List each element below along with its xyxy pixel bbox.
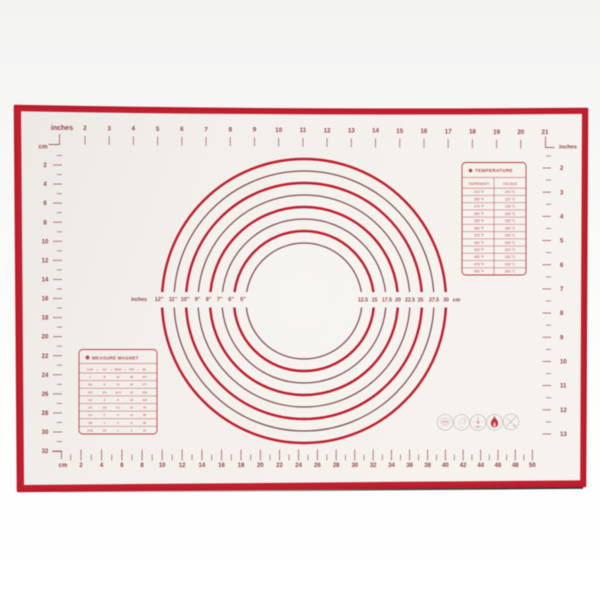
svg-text:cm: cm: [453, 298, 461, 304]
svg-text:2/3: 2/3: [88, 390, 93, 394]
svg-text:CELSIUS: CELSIUS: [503, 182, 518, 186]
svg-text:400 °F: 400 °F: [474, 241, 484, 245]
svg-text:8″: 8″: [206, 297, 212, 303]
svg-text:inches: inches: [559, 145, 577, 151]
svg-text:10: 10: [275, 127, 282, 134]
svg-text:6″: 6″: [228, 297, 234, 303]
svg-text:+: +: [111, 367, 113, 371]
svg-text:177: 177: [142, 383, 147, 387]
svg-text:14: 14: [42, 278, 49, 284]
svg-text:34: 34: [388, 463, 395, 469]
svg-text:5: 5: [156, 126, 160, 133]
svg-text:26: 26: [314, 463, 321, 469]
svg-text:17.5: 17.5: [382, 298, 392, 304]
svg-text:20: 20: [517, 129, 524, 136]
svg-text:10″: 10″: [181, 297, 190, 303]
svg-text:475 °F: 475 °F: [474, 262, 484, 266]
svg-text:158: 158: [142, 390, 147, 394]
svg-text:6: 6: [180, 126, 184, 133]
svg-text:250 °F: 250 °F: [474, 197, 484, 201]
svg-text:120 °C: 120 °C: [505, 197, 516, 201]
svg-text:10.6: 10.6: [115, 390, 121, 394]
svg-text:1/8: 1/8: [88, 421, 93, 425]
svg-text:13: 13: [348, 128, 355, 135]
svg-text:32: 32: [42, 449, 49, 455]
svg-text:1/2: 1/2: [102, 428, 107, 432]
svg-text:24: 24: [130, 398, 134, 402]
svg-text:FAHRENHEIT: FAHRENHEIT: [469, 182, 490, 186]
svg-text:500 °F: 500 °F: [474, 270, 484, 274]
svg-text:4: 4: [132, 126, 136, 133]
svg-text:5.3: 5.3: [116, 406, 121, 410]
svg-text:59: 59: [143, 413, 147, 417]
svg-text:24: 24: [295, 463, 302, 469]
svg-text:20: 20: [257, 463, 264, 469]
svg-text:3: 3: [107, 125, 111, 132]
svg-text:cm: cm: [59, 463, 68, 469]
svg-text:425 °F: 425 °F: [474, 248, 484, 252]
svg-text:9″: 9″: [195, 297, 201, 303]
svg-text:14: 14: [199, 463, 206, 469]
svg-text:19: 19: [493, 129, 500, 136]
svg-text:27.5: 27.5: [429, 298, 439, 304]
svg-text:12: 12: [179, 463, 186, 469]
svg-text:10: 10: [560, 360, 567, 366]
svg-text:10: 10: [159, 463, 166, 469]
svg-text:135 °C: 135 °C: [505, 205, 516, 209]
svg-text:1/2: 1/2: [88, 398, 93, 402]
svg-text:16: 16: [420, 128, 427, 135]
svg-text:cm: cm: [39, 144, 48, 151]
svg-text:10: 10: [42, 239, 49, 245]
svg-text:180 °C: 180 °C: [505, 226, 516, 230]
svg-text:28: 28: [333, 463, 340, 469]
svg-text:100%: 100%: [442, 420, 449, 424]
svg-text:12: 12: [116, 383, 120, 387]
svg-text:40: 40: [442, 463, 449, 469]
svg-text:50: 50: [529, 463, 536, 469]
svg-text:12: 12: [42, 259, 49, 265]
svg-text:260 °C: 260 °C: [505, 270, 516, 274]
svg-text:42: 42: [460, 463, 467, 469]
svg-text:230 °C: 230 °C: [505, 255, 516, 259]
svg-text:12: 12: [560, 408, 567, 414]
svg-text:16: 16: [130, 406, 134, 410]
svg-text:36: 36: [130, 383, 134, 387]
svg-text:TBSP: TBSP: [114, 367, 122, 371]
svg-text:CUP: CUP: [87, 367, 93, 371]
svg-text:12: 12: [324, 127, 331, 134]
svg-text:30: 30: [143, 421, 147, 425]
svg-text:13: 13: [560, 432, 567, 438]
svg-text:17: 17: [445, 128, 452, 135]
svg-text:ML: ML: [142, 367, 146, 371]
svg-text:18: 18: [238, 463, 245, 469]
svg-text:1/16: 1/16: [87, 428, 93, 432]
svg-text:20: 20: [42, 335, 49, 341]
svg-text:9: 9: [253, 127, 257, 134]
svg-text:+: +: [97, 367, 99, 371]
svg-text:300 °F: 300 °F: [474, 212, 484, 216]
svg-text:48: 48: [512, 463, 519, 469]
svg-text:165 °C: 165 °C: [505, 219, 516, 223]
svg-text:15: 15: [143, 428, 147, 432]
svg-text:12.5: 12.5: [358, 298, 368, 304]
svg-text:15: 15: [372, 298, 378, 304]
svg-text:MEASURE MAGNET: MEASURE MAGNET: [92, 355, 139, 360]
svg-text:16: 16: [116, 375, 120, 379]
svg-text:inches: inches: [51, 125, 73, 132]
svg-text:18: 18: [42, 316, 49, 322]
svg-text:12″: 12″: [155, 297, 164, 303]
svg-text:118: 118: [142, 398, 147, 402]
svg-text:190 °C: 190 °C: [505, 234, 516, 238]
svg-text:+: +: [124, 367, 126, 371]
svg-text:2⅔: 2⅔: [102, 406, 107, 410]
svg-text:TSP: TSP: [129, 367, 135, 371]
svg-text:5⅓: 5⅓: [102, 390, 107, 394]
svg-text:200 °C: 200 °C: [505, 241, 516, 245]
svg-text:7: 7: [204, 126, 208, 133]
svg-text:1/4: 1/4: [88, 413, 93, 417]
svg-text:275 °F: 275 °F: [474, 205, 484, 209]
svg-text:8: 8: [229, 127, 233, 134]
svg-text:20: 20: [395, 298, 401, 304]
svg-text:48: 48: [130, 375, 134, 379]
svg-text:OZ: OZ: [102, 367, 106, 371]
svg-text:46: 46: [495, 463, 502, 469]
svg-text:14: 14: [372, 128, 379, 135]
svg-text:350 °F: 350 °F: [474, 226, 484, 230]
svg-text:15: 15: [396, 128, 403, 135]
svg-text:36: 36: [406, 463, 413, 469]
svg-text:18: 18: [469, 129, 476, 136]
svg-text:16: 16: [42, 297, 49, 303]
svg-text:237: 237: [142, 375, 147, 379]
svg-text:11″: 11″: [169, 297, 178, 303]
svg-text:11: 11: [300, 127, 307, 134]
svg-text:22: 22: [276, 463, 283, 469]
svg-text:28: 28: [42, 411, 49, 417]
svg-text:212 °F: 212 °F: [474, 190, 484, 194]
svg-text:25: 25: [418, 298, 424, 304]
svg-text:375 °F: 375 °F: [474, 234, 484, 238]
svg-text:16: 16: [218, 463, 225, 469]
svg-text:30: 30: [443, 298, 449, 304]
svg-text:245 °C: 245 °C: [505, 262, 516, 266]
svg-text:325 °F: 325 °F: [474, 219, 484, 223]
svg-text:32: 32: [130, 390, 134, 394]
svg-text:12: 12: [130, 413, 134, 417]
svg-text:11: 11: [560, 384, 567, 390]
svg-text:150 °C: 150 °C: [505, 212, 516, 216]
svg-text:38: 38: [424, 463, 431, 469]
svg-text:30: 30: [42, 430, 49, 436]
svg-text:3/4: 3/4: [88, 383, 93, 387]
svg-text:44: 44: [477, 463, 484, 469]
svg-text:79: 79: [143, 406, 147, 410]
svg-text:5″: 5″: [240, 297, 246, 303]
svg-text:+: +: [137, 367, 139, 371]
svg-text:1/3: 1/3: [88, 406, 93, 410]
svg-text:7″: 7″: [217, 297, 223, 303]
svg-text:TEMPERATURE: TEMPERATURE: [475, 168, 513, 173]
svg-text:2: 2: [83, 125, 87, 132]
svg-text:22.5: 22.5: [405, 298, 415, 304]
svg-text:32: 32: [370, 463, 377, 469]
svg-text:26: 26: [42, 392, 49, 398]
svg-text:inches: inches: [131, 297, 147, 303]
svg-text:24: 24: [42, 373, 49, 379]
svg-text:450 °F: 450 °F: [474, 255, 484, 259]
svg-text:22: 22: [42, 354, 49, 360]
svg-text:220 °C: 220 °C: [505, 248, 516, 252]
svg-text:100 °C: 100 °C: [505, 190, 516, 194]
svg-text:21: 21: [542, 129, 549, 136]
svg-text:30: 30: [351, 463, 358, 469]
